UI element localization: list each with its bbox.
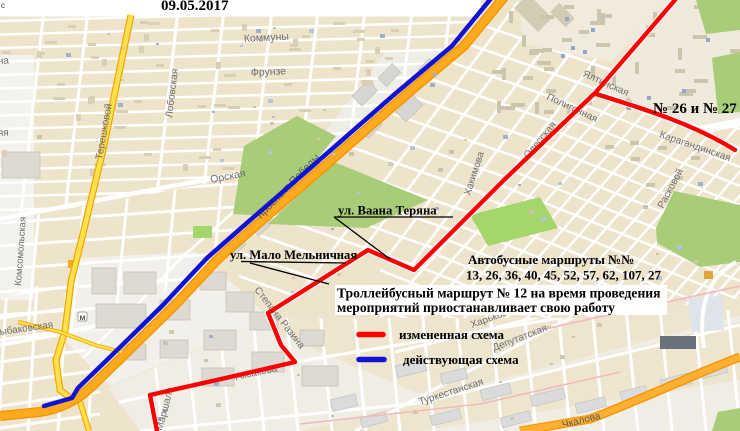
svg-text:Фрунзе: Фрунзе xyxy=(251,65,287,79)
svg-text:Коммуны: Коммуны xyxy=(244,31,290,45)
svg-text:мероприятий приостанавливает с: мероприятий приостанавливает свою работу xyxy=(337,300,615,315)
svg-text:ул. Ваана Теряна: ул. Ваана Теряна xyxy=(338,204,437,218)
svg-text:м: м xyxy=(80,313,86,322)
svg-text:действующая схема: действующая схема xyxy=(403,352,519,367)
svg-text:яя: яя xyxy=(0,127,9,139)
svg-text:измененная схема: измененная схема xyxy=(399,327,504,342)
svg-text:13, 26, 36, 40, 45, 52, 57, 62: 13, 26, 36, 40, 45, 52, 57, 62, 107, 27 xyxy=(466,268,662,283)
svg-text:Троллейбусный маршрут № 12 на: Троллейбусный маршрут № 12 на время пров… xyxy=(337,286,660,301)
svg-text:на: на xyxy=(0,55,10,67)
svg-text:Автобусные маршруты №№: Автобусные маршруты №№ xyxy=(468,252,634,267)
svg-text:№ 26 и № 27: № 26 и № 27 xyxy=(653,101,737,117)
svg-text:09.05.2017: 09.05.2017 xyxy=(161,0,229,14)
svg-text:ул. Мало Мельничная: ул. Мало Мельничная xyxy=(230,248,357,262)
svg-text:с: с xyxy=(1,1,5,10)
